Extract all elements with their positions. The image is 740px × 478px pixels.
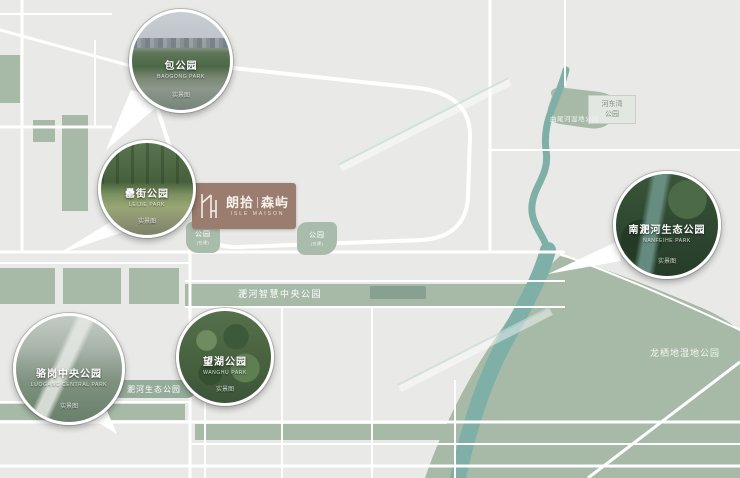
location-map: 朗拾 森屿 ISLE MAISON 公园 (在建) 公园 (在建) 淝河智慧中央… — [0, 0, 740, 478]
quweihe-wetland-park-label: 曲尾河湿地公园 — [550, 113, 599, 123]
park-photo-bubble-baogongyuan: 包公园 BAOGONG PARK 实景图 — [129, 9, 233, 113]
park-photo-bubble-leijie: 罍街公园 LEIJIE PARK 实景图 — [98, 140, 196, 238]
park-name: 望湖公园 — [179, 353, 271, 368]
brand-monogram-icon — [199, 192, 219, 220]
brand-name-en: ISLE MAISON — [231, 212, 285, 217]
brand-plate: 朗拾 森屿 ISLE MAISON — [192, 183, 296, 229]
photo-tag: 实景图 — [616, 256, 718, 265]
brand-text: 朗拾 森屿 ISLE MAISON — [226, 196, 289, 217]
park-name: 骆岗中央公园 — [16, 365, 122, 380]
park-pinyin: BAOGONG PARK — [132, 74, 230, 80]
park-pinyin: LEIJIE PARK — [101, 202, 193, 208]
longqidi-wetland-park-label: 龙栖地湿地公园 — [650, 346, 720, 359]
small-park-sublabel: (在建) — [197, 240, 210, 246]
brand-divider — [257, 197, 258, 208]
photo-tag: 实景图 — [132, 90, 230, 99]
park-pinyin: WANGHU PARK — [179, 370, 271, 376]
park-photo-bubble-nanfeihe: 南淝河生态公园 NANFEIHE PARK 实景图 — [613, 171, 721, 279]
park-pinyin: NANFEIHE PARK — [616, 238, 718, 244]
photo-tag: 实景图 — [16, 401, 122, 410]
park-photo-bubble-luogang: 骆岗中央公园 LUOGANG CENTRAL PARK 实景图 — [13, 313, 125, 425]
park-pinyin: LUOGANG CENTRAL PARK — [16, 382, 122, 388]
small-park-sublabel: (在建) — [311, 241, 324, 247]
brand-name-right: 森屿 — [261, 196, 289, 209]
park-photo-bubble-wanghu: 望湖公园 WANGHU PARK 实景图 — [176, 308, 274, 406]
feihe-smart-park-label: 淝河智慧中央公园 — [238, 287, 322, 300]
small-park-blob-right: 公园 (在建) — [297, 222, 337, 255]
park-name: 罍街公园 — [101, 185, 193, 200]
feihe-band-marker — [370, 286, 426, 299]
small-park-label: 公园 — [309, 230, 325, 240]
small-park-label: 公园 — [195, 229, 211, 239]
photo-tag: 实景图 — [101, 216, 193, 225]
photo-tag: 实景图 — [179, 384, 271, 393]
park-name: 包公园 — [132, 57, 230, 72]
park-name: 南淝河生态公园 — [616, 221, 718, 236]
brand-name-left: 朗拾 — [226, 196, 254, 209]
